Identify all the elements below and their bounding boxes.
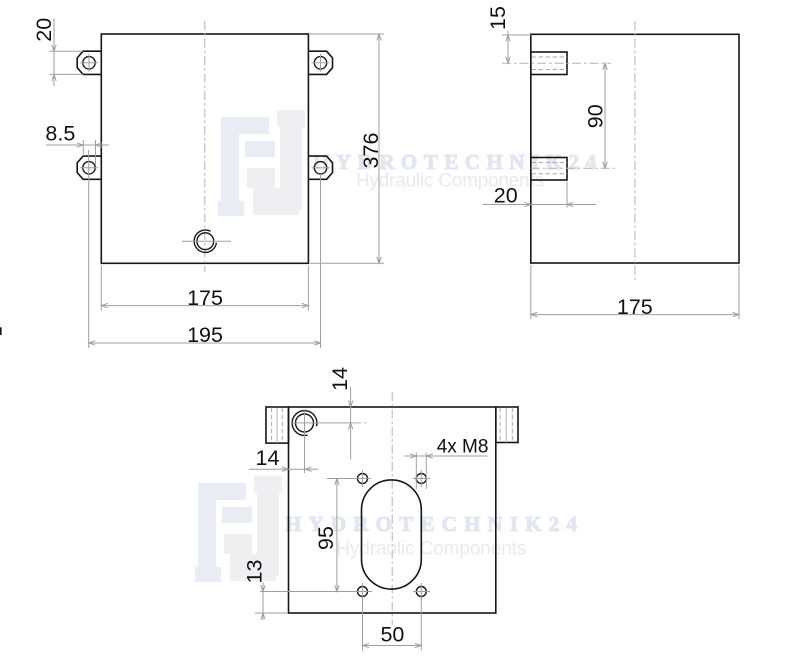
svg-text:Hydraulic Components: Hydraulic Components [336, 539, 526, 560]
svg-text:175: 175 [617, 295, 653, 319]
svg-text:14: 14 [328, 367, 352, 391]
svg-text:20: 20 [494, 183, 518, 207]
svg-text:175: 175 [187, 286, 223, 310]
svg-text:50: 50 [380, 622, 404, 646]
svg-text:95: 95 [314, 526, 338, 550]
svg-text:4x M8: 4x M8 [437, 437, 489, 458]
svg-text:90: 90 [584, 104, 608, 128]
svg-text:20: 20 [32, 18, 56, 42]
svg-text:13: 13 [243, 560, 267, 584]
svg-text:14: 14 [256, 446, 280, 470]
svg-text:15: 15 [486, 6, 510, 30]
svg-text:8.5: 8.5 [45, 122, 75, 146]
